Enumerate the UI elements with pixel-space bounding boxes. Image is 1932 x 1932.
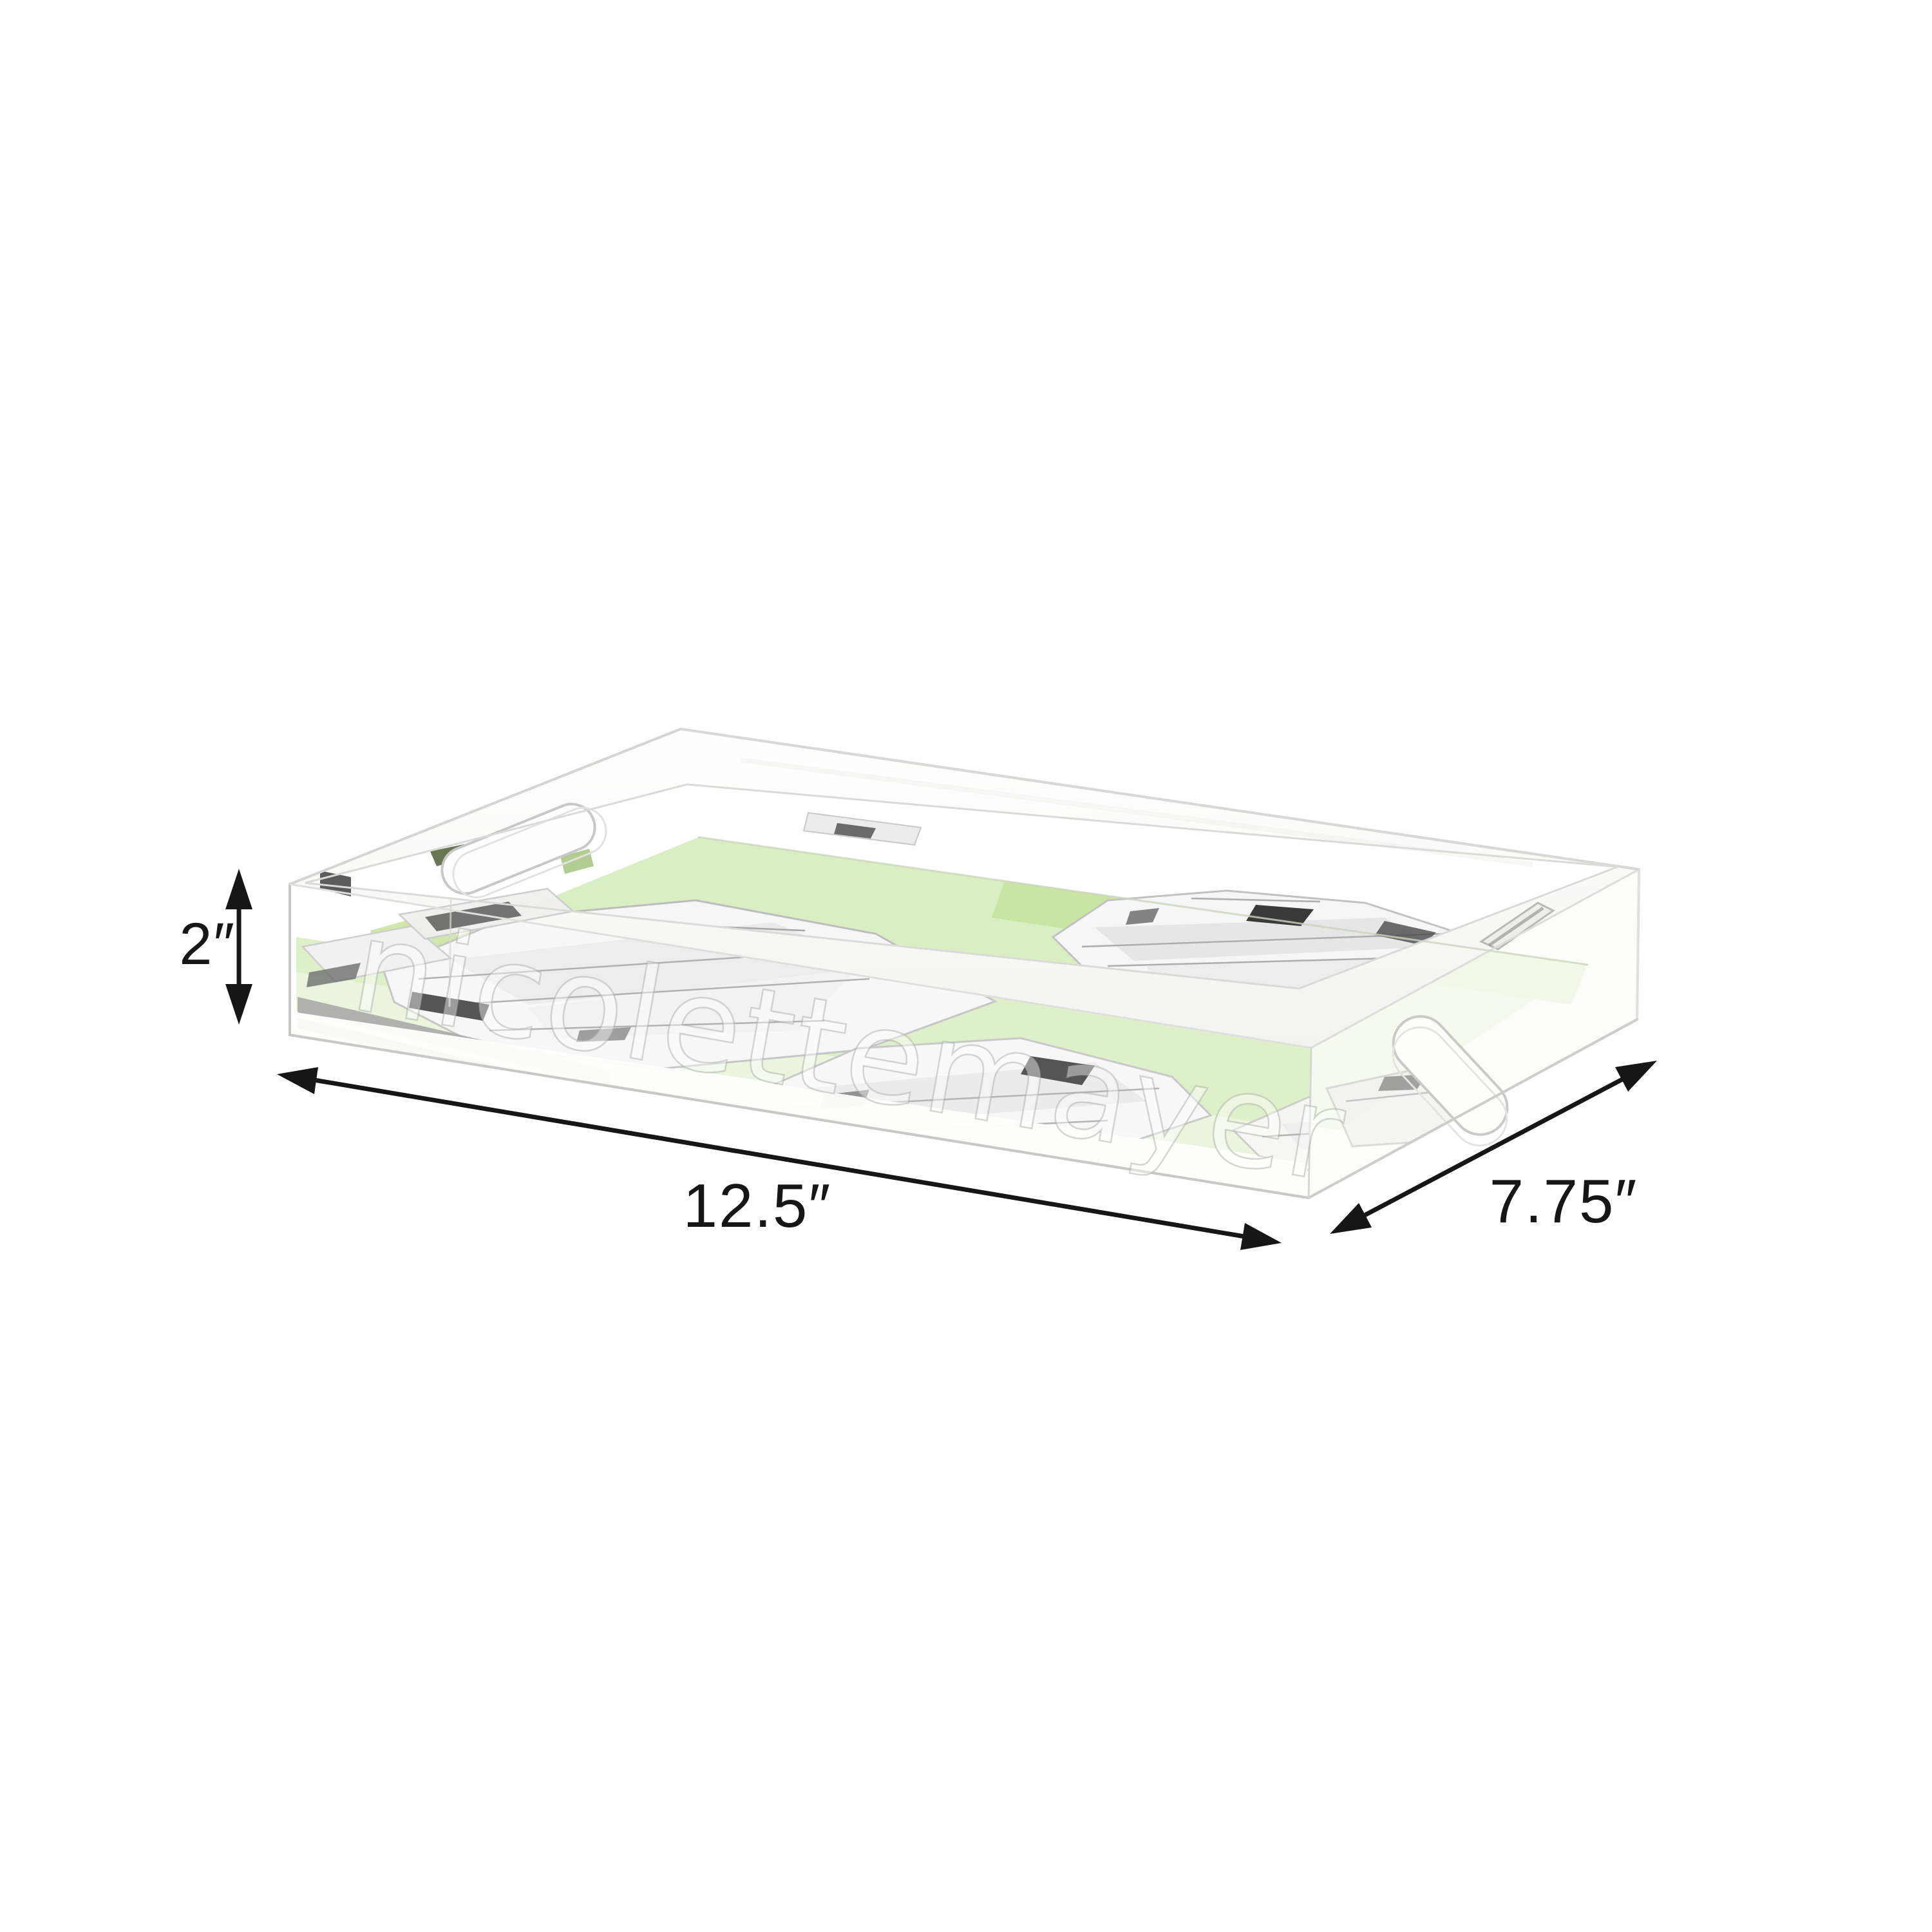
depth-dimension-label: 7.75″ bbox=[1490, 1167, 1638, 1236]
product-dimension-diagram: nicolettemayer 2″ 12.5″ 7.75″ bbox=[0, 0, 1932, 1932]
height-dimension-label: 2″ bbox=[179, 911, 236, 977]
length-dimension-label: 12.5″ bbox=[683, 1171, 832, 1240]
acrylic-tray-dimension-illustration: nicolettemayer 2″ 12.5″ 7.75″ bbox=[0, 0, 1932, 1932]
